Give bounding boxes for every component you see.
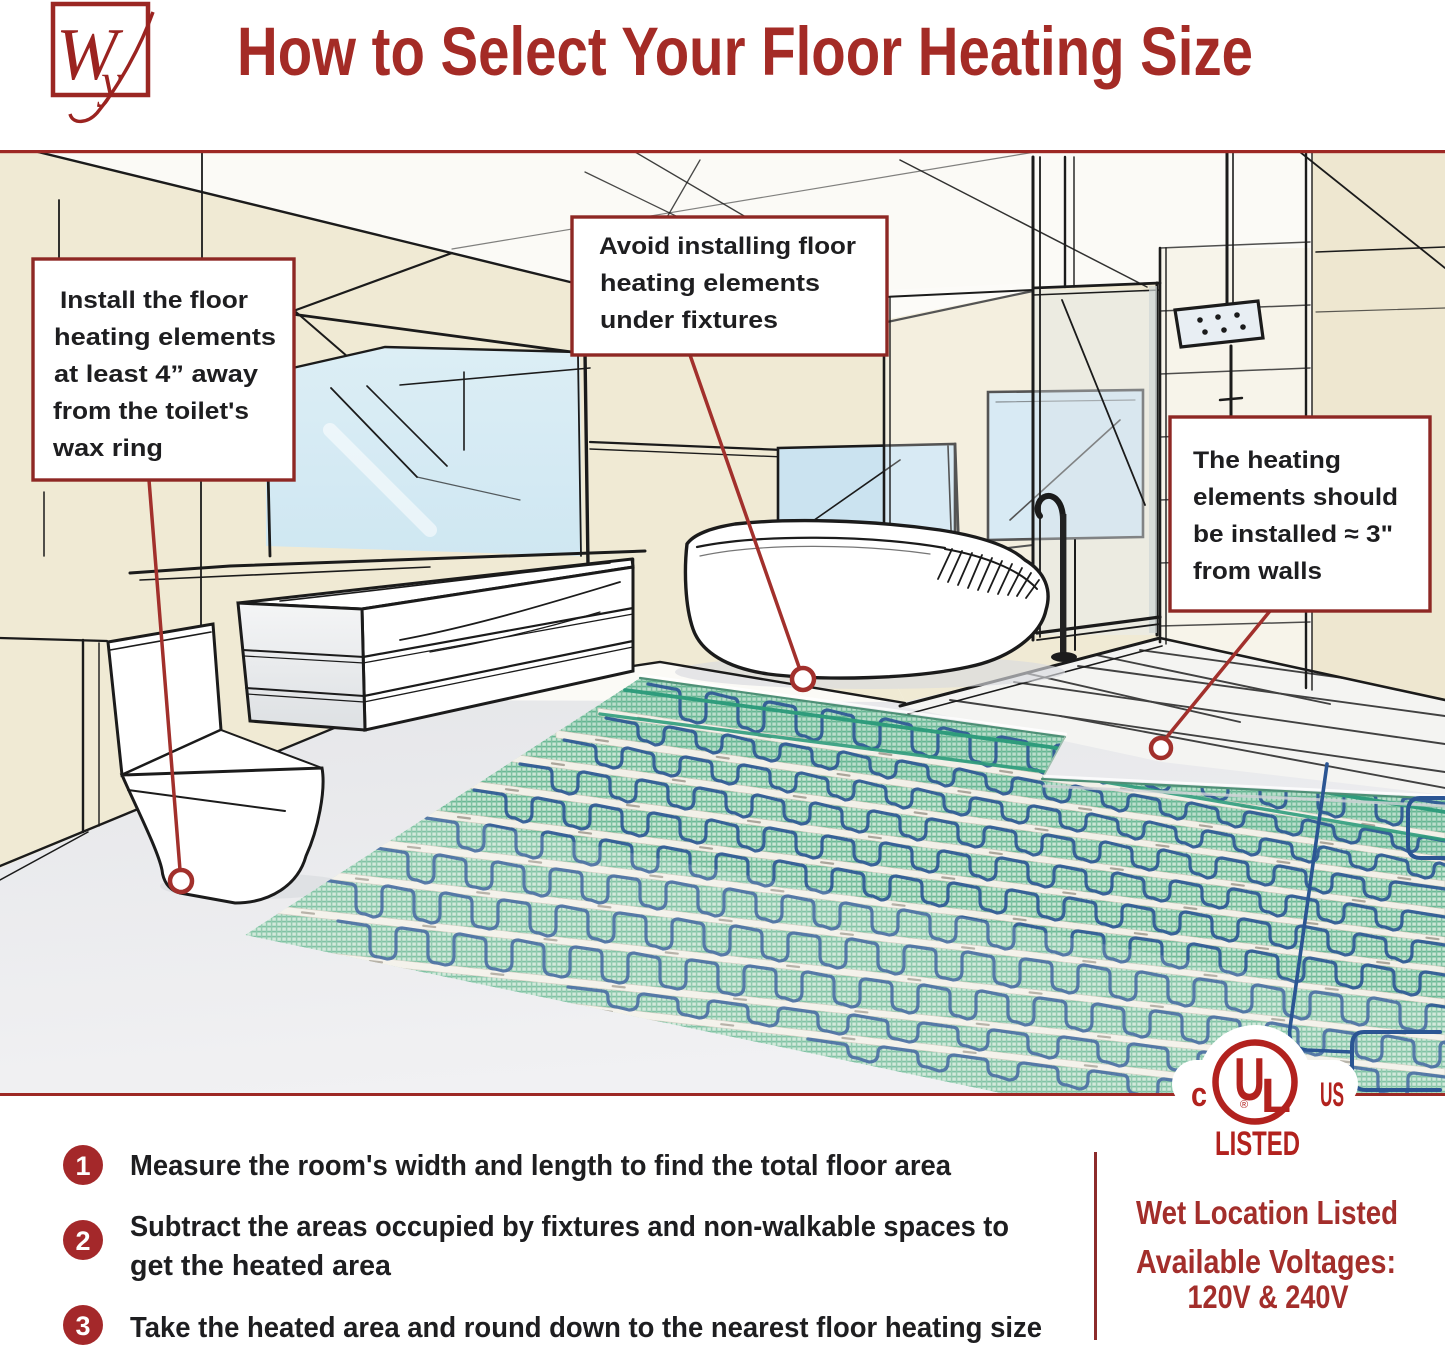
svg-text:c: c [1191,1076,1207,1114]
svg-text:Available Voltages:: Available Voltages: [1136,1243,1396,1280]
svg-text:1: 1 [75,1151,90,1181]
svg-text:120V & 240V: 120V & 240V [1188,1279,1350,1315]
svg-text:Install the floor: Install the floor [60,287,248,314]
svg-text:L: L [1261,1070,1291,1123]
svg-text:at least 4” away: at least 4” away [54,361,258,388]
svg-text:elements should: elements should [1193,484,1398,511]
svg-text:heating elements: heating elements [54,324,276,351]
svg-text:Wet Location Listed: Wet Location Listed [1136,1194,1398,1231]
svg-text:be installed ≈ 3": be installed ≈ 3" [1193,521,1393,548]
svg-text:heating elements: heating elements [600,270,820,297]
svg-text:US: US [1320,1076,1344,1114]
svg-text:How to Select Your Floor Heati: How to Select Your Floor Heating Size [237,13,1253,90]
svg-text:The heating: The heating [1193,447,1341,474]
svg-text:Measure the room's width and l: Measure the room's width and length to f… [130,1150,952,1182]
svg-text:Take the heated area and round: Take the heated area and round down to t… [130,1312,1042,1344]
svg-text:Subtract the areas occupied by: Subtract the areas occupied by fixtures … [130,1211,1009,1243]
svg-text:from the toilet's: from the toilet's [53,398,249,425]
svg-text:from walls: from walls [1193,558,1322,585]
svg-text:Avoid installing floor: Avoid installing floor [599,233,856,260]
svg-text:®: ® [1240,1099,1248,1111]
svg-text:under fixtures: under fixtures [600,307,778,334]
svg-text:wax ring: wax ring [52,435,163,462]
svg-text:3: 3 [75,1311,90,1341]
svg-text:get the heated area: get the heated area [130,1250,392,1282]
svg-text:LISTED: LISTED [1215,1125,1300,1163]
svg-text:2: 2 [75,1226,90,1256]
